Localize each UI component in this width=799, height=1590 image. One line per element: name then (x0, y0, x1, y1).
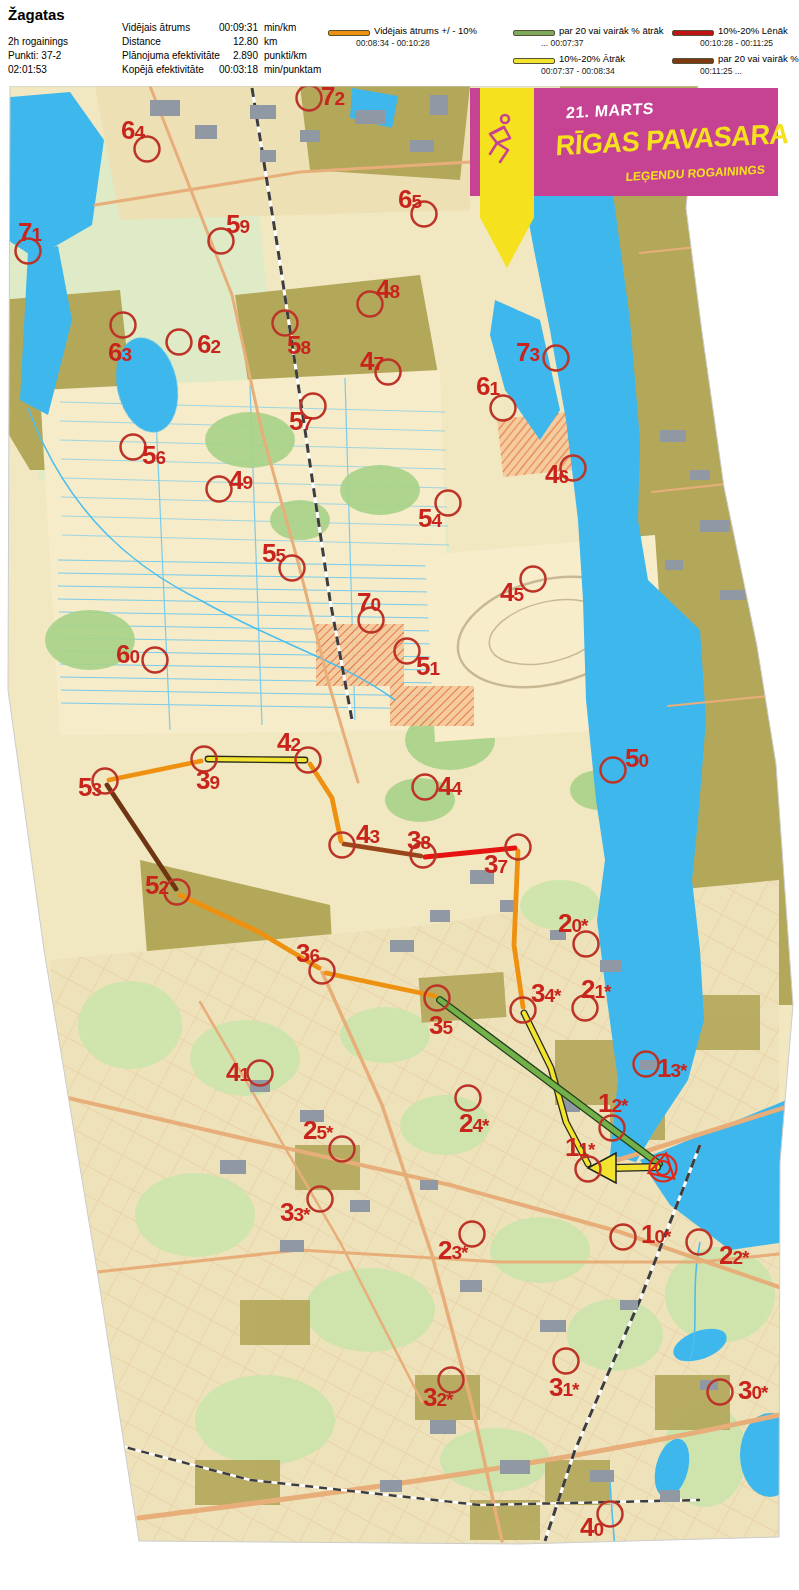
total-time: 02:01:53 (8, 64, 47, 75)
stat-unit: min/punktam (264, 64, 321, 75)
legend-label: par 20 vai vairāk % lēnāk (718, 53, 799, 64)
map-background (0, 80, 799, 1590)
stat-value: 12.80 (198, 36, 258, 47)
legend-swatch (672, 30, 714, 36)
header: Žagatas 2h rogainings Punkti: 37-2 02:01… (0, 0, 799, 86)
legend-range: ... 00:07:37 (541, 38, 584, 48)
legend-swatch (672, 58, 714, 64)
map-canvas: 7264715965486362584773615756464954554570… (0, 0, 799, 1590)
runner-icon (480, 110, 520, 170)
stat-unit: km (264, 36, 277, 47)
page: Žagatas 2h rogainings Punkti: 37-2 02:01… (0, 0, 799, 1590)
legend-label: 10%-20% Ātrāk (559, 53, 625, 64)
legend-range: 00:11:25 ... (700, 66, 742, 76)
event-banner: 21. MARTS RĪGAS PAVASARA LEĢENDU ROGAINI… (470, 88, 778, 196)
legend-swatch (328, 30, 370, 36)
leg-42-39 (208, 759, 305, 760)
stat-value: 00:03:18 (198, 64, 258, 75)
legend-swatch (513, 58, 555, 64)
stat-unit: punkti/km (264, 50, 307, 61)
stat-value: 2.890 (198, 50, 258, 61)
legend-label: 10%-20% Lēnāk (718, 25, 788, 36)
legend-range: 00:08:34 - 00:10:28 (356, 38, 430, 48)
legend-swatch (513, 30, 555, 36)
course-type: 2h rogainings (8, 36, 68, 47)
legend-label: Vidējais ātrums +/ - 10% (374, 25, 477, 36)
page-title: Žagatas (8, 6, 65, 23)
points-total: Punkti: 37-2 (8, 50, 61, 61)
legend-range: 00:10:28 - 00:11:25 (700, 38, 773, 48)
legend-label: par 20 vai vairāk % ātrāk (559, 25, 664, 36)
stat-unit: min/km (264, 22, 296, 33)
stat-value: 00:09:31 (198, 22, 258, 33)
legend-range: 00:07:37 - 00:08:34 (541, 66, 615, 76)
